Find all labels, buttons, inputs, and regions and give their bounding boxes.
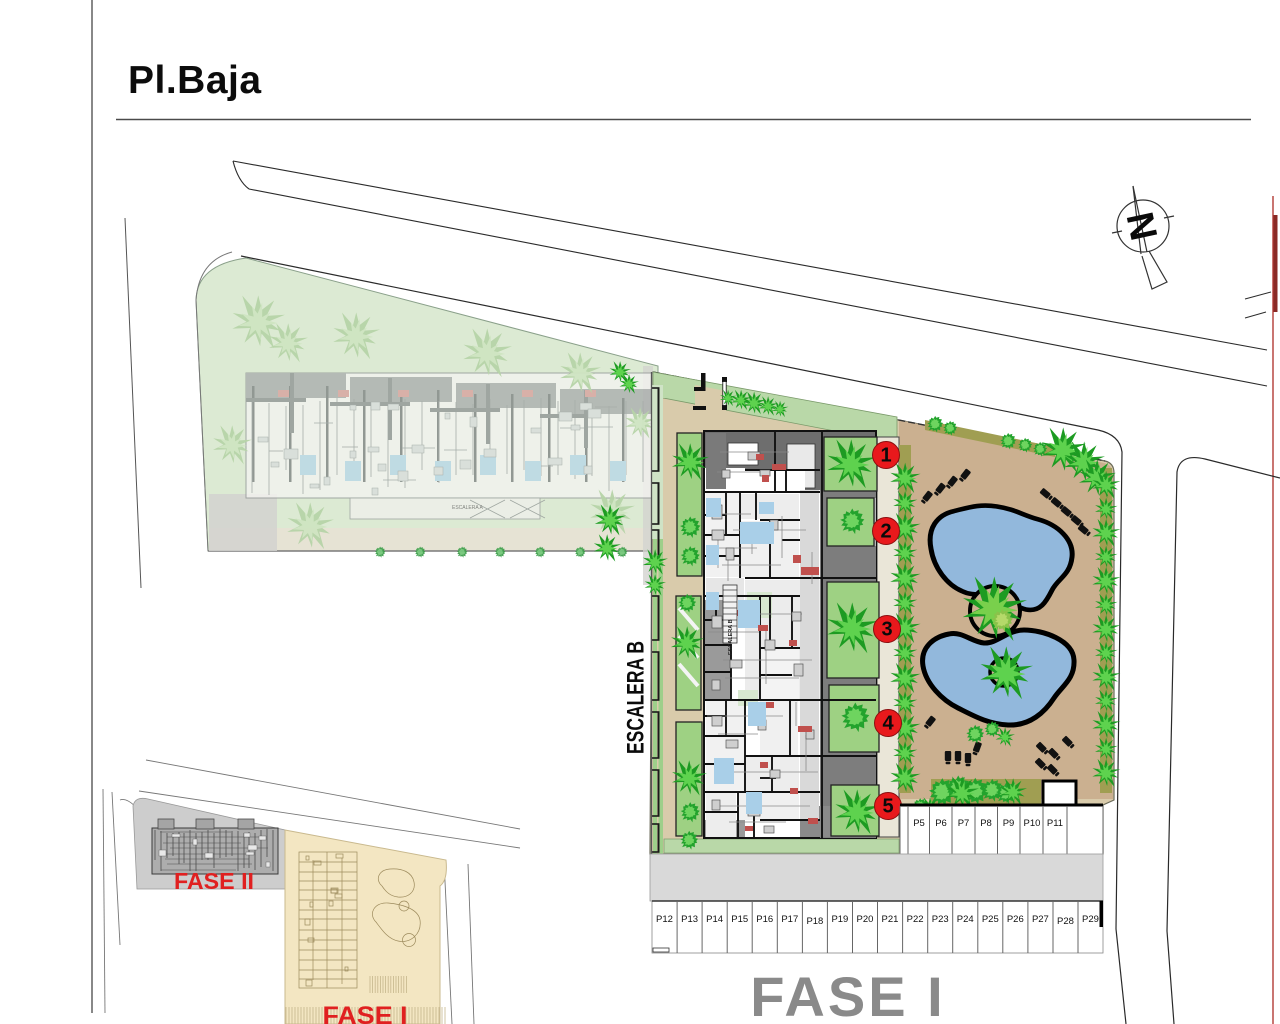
svg-text:ESCALERA A: ESCALERA A <box>452 505 484 511</box>
svg-text:P29: P29 <box>1082 914 1099 925</box>
svg-text:Pl.Baja: Pl.Baja <box>128 59 262 102</box>
svg-text:P8: P8 <box>980 818 992 829</box>
svg-text:P23: P23 <box>932 914 949 925</box>
svg-text:P11: P11 <box>1047 818 1063 829</box>
svg-text:P19: P19 <box>831 914 848 925</box>
svg-text:P25: P25 <box>982 914 999 925</box>
svg-text:2: 2 <box>880 521 891 543</box>
svg-text:P22: P22 <box>907 914 924 925</box>
svg-text:5: 5 <box>882 796 893 818</box>
svg-text:P27: P27 <box>1032 914 1049 925</box>
svg-text:P16: P16 <box>756 914 773 925</box>
svg-text:3: 3 <box>881 619 892 641</box>
svg-text:P5: P5 <box>913 818 925 829</box>
svg-text:P20: P20 <box>857 914 874 925</box>
svg-text:P9: P9 <box>1003 818 1015 829</box>
svg-text:P14: P14 <box>706 914 723 925</box>
svg-text:P12: P12 <box>656 914 673 925</box>
svg-text:P24: P24 <box>957 914 974 925</box>
svg-text:P21: P21 <box>882 914 899 925</box>
svg-text:P6: P6 <box>935 818 947 829</box>
svg-text:4: 4 <box>882 713 894 735</box>
svg-text:P18: P18 <box>806 916 823 927</box>
svg-text:P15: P15 <box>731 914 748 925</box>
svg-text:P13: P13 <box>681 914 698 925</box>
svg-text:P17: P17 <box>781 914 798 925</box>
svg-text:ESCALERA B: ESCALERA B <box>728 619 734 655</box>
svg-text:FASE I: FASE I <box>750 965 945 1024</box>
svg-text:P28: P28 <box>1057 916 1074 927</box>
svg-text:1: 1 <box>880 445 891 467</box>
svg-text:FASE II: FASE II <box>174 868 254 894</box>
svg-text:FASE I: FASE I <box>323 1002 408 1024</box>
svg-text:P7: P7 <box>958 818 970 829</box>
svg-text:P26: P26 <box>1007 914 1024 925</box>
svg-text:P10: P10 <box>1024 818 1041 829</box>
svg-text:ESCALERA B: ESCALERA B <box>623 641 650 754</box>
